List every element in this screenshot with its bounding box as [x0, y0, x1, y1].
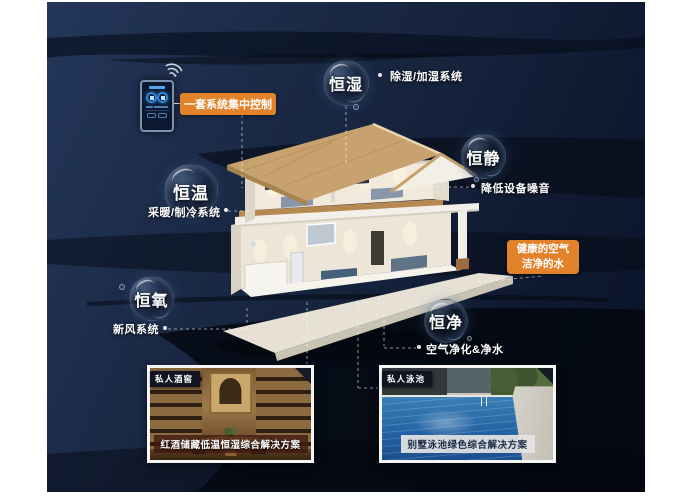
- label-dehumidify-humidify-system: 除湿/加湿系统: [390, 68, 463, 84]
- highlight-line-1: 健康的空气: [517, 242, 570, 257]
- controller-phone: [140, 80, 174, 132]
- corner-fold: [295, 368, 311, 384]
- deco-bubble: [474, 177, 479, 182]
- corner-fold: [537, 368, 553, 384]
- deco-bubble: [119, 284, 125, 290]
- phone-dial-right: [157, 92, 168, 103]
- bubble-constant-humidity: 恒湿: [323, 60, 369, 106]
- phone-buttons: [145, 113, 169, 118]
- badge-private-wine-cellar: 私人酒窖: [150, 371, 200, 387]
- deco-bubble: [353, 104, 359, 110]
- badge-private-pool: 私人泳池: [382, 371, 432, 387]
- phone-readouts: [145, 106, 169, 108]
- poster-canvas: 一套系统集中控制 恒湿 恒静 恒温 恒氧 恒净 除湿/加湿系统 降低设备噪音 采…: [47, 2, 645, 492]
- caption-wine-solution: 红酒储藏低温恒湿综合解决方案: [153, 435, 307, 453]
- caption-pool-solution: 别墅泳池绿色综合解决方案: [400, 435, 534, 453]
- central-control-label: 一套系统集中控制: [180, 93, 276, 115]
- phone-dial-left: [146, 92, 157, 103]
- card-private-pool: 私人泳池 别墅泳池绿色综合解决方案: [379, 365, 556, 463]
- highlight-line-2: 洁净的水: [522, 257, 564, 272]
- bubble-constant-purity: 恒净: [424, 299, 468, 343]
- label-fresh-air-system: 新风系统: [113, 321, 159, 337]
- label-reduce-equipment-noise: 降低设备噪音: [481, 180, 550, 196]
- wifi-icon: [164, 59, 184, 77]
- card-wine-cellar: 私人酒窖 红酒储藏低温恒湿综合解决方案: [147, 365, 314, 463]
- label-heating-cooling-system: 采暖/制冷系统: [148, 204, 221, 220]
- label-air-water-purification: 空气净化&净水: [426, 341, 503, 357]
- phone-app-title-bar: [149, 86, 165, 89]
- healthy-air-clean-water-box: 健康的空气 洁净的水: [507, 240, 579, 274]
- deco-bubble: [251, 242, 256, 247]
- bubble-constant-oxygen: 恒氧: [129, 276, 174, 321]
- bubble-constant-quiet: 恒静: [461, 134, 506, 179]
